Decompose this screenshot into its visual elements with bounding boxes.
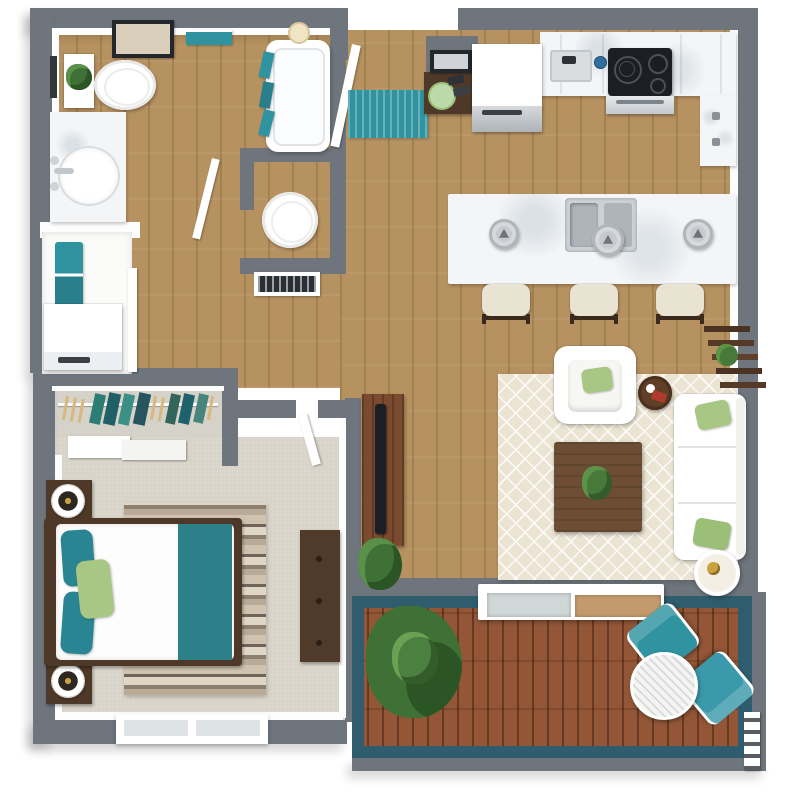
deck-wall-bottom — [352, 746, 752, 758]
armchair-pillow — [580, 366, 613, 394]
prep-faucet — [562, 56, 576, 64]
refrigerator-handle — [482, 110, 522, 115]
closet-sliding-door — [122, 440, 186, 460]
bathtub-basin — [273, 48, 325, 146]
floor-plant — [358, 538, 402, 590]
closet-sliding-door — [68, 436, 130, 458]
stool-cushion — [482, 284, 530, 316]
door-glass-panel — [484, 590, 574, 620]
deck-outer-bottom — [352, 758, 766, 771]
prep-sink — [550, 50, 592, 82]
bar-stool — [570, 284, 618, 324]
entry-rug — [348, 90, 428, 138]
coffee-table-plant — [582, 466, 612, 500]
deck-ladder — [744, 712, 760, 770]
window-panes — [124, 720, 188, 736]
toilet-seat-ring — [104, 68, 150, 106]
laundry-door — [128, 268, 137, 372]
stool-leg — [570, 314, 574, 324]
pantry-handles — [712, 112, 720, 120]
stool-legs — [573, 316, 615, 320]
faucet-handles — [50, 156, 59, 165]
stool-legs — [659, 316, 701, 320]
stool-legs — [485, 316, 527, 320]
shelf-plant — [716, 344, 738, 366]
stool-cushion — [570, 284, 618, 316]
bed-teal-runner — [178, 524, 232, 660]
pendant-light — [592, 224, 624, 256]
pantry-cabinet — [700, 96, 736, 166]
sofa-cushion-seams — [678, 446, 740, 448]
folded-towels — [55, 242, 83, 308]
shower-head — [288, 22, 310, 44]
burner-inner-ring — [619, 61, 635, 77]
green-plate — [428, 82, 456, 110]
wall-wc-left — [240, 148, 254, 210]
oven-front — [606, 96, 674, 114]
kettle — [594, 56, 607, 69]
bar-stool — [656, 284, 704, 324]
shelf-plant — [66, 64, 92, 90]
entry-wall-art — [430, 50, 472, 73]
burner-small — [650, 78, 666, 94]
round-slat-table — [630, 652, 698, 720]
refrigerator-top — [472, 44, 542, 108]
wall-closet-right — [222, 368, 238, 466]
wall-bedroom-top-b — [318, 400, 345, 418]
floor-plan-canvas — [0, 0, 800, 800]
dresser — [300, 530, 340, 662]
wc-art — [258, 276, 316, 292]
stool-leg — [656, 314, 660, 324]
ladder-shelf — [704, 326, 750, 332]
oven-handle — [616, 100, 664, 104]
side-wall-art — [50, 56, 57, 98]
wc-toilet-ring — [271, 201, 313, 243]
stool-leg — [482, 314, 486, 324]
pendant-light — [489, 219, 519, 249]
stool-cushion — [656, 284, 704, 316]
pendant-light — [683, 219, 713, 249]
deck-plant-core — [392, 632, 438, 684]
stool-leg — [700, 314, 704, 324]
wall-top-kitchen — [458, 8, 758, 30]
sofa-back — [736, 398, 745, 556]
gold-floor-lamp — [707, 562, 720, 575]
towel-bar — [186, 30, 232, 45]
bathroom-wall-art — [112, 20, 174, 58]
faucet-spout — [54, 168, 74, 174]
lining-closet-top — [52, 386, 224, 391]
sofa-pillow — [692, 517, 732, 551]
vanity-sink — [58, 146, 120, 206]
deck-wall-left — [352, 596, 364, 758]
dresser-knobs — [316, 556, 322, 562]
bar-stool — [482, 284, 530, 324]
burner-medium — [648, 54, 668, 74]
stool-leg — [526, 314, 530, 324]
stool-leg — [614, 314, 618, 324]
washer-panel — [58, 357, 90, 363]
lining-bedroom-right — [339, 418, 346, 718]
tv — [375, 404, 386, 534]
green-pillow — [75, 558, 115, 619]
table-lamp — [52, 665, 84, 697]
wall-bedroom-top-a — [238, 400, 296, 418]
table-lamp — [52, 485, 84, 517]
